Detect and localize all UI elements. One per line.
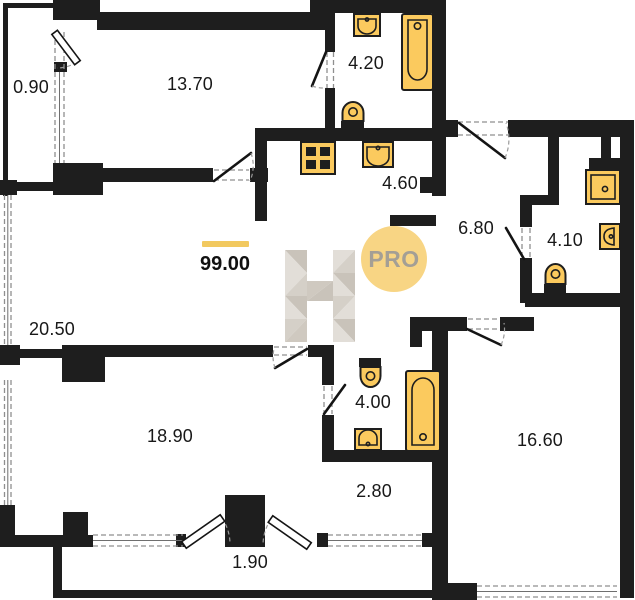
wall xyxy=(63,512,88,535)
room-area-label: 0.90 xyxy=(13,78,49,96)
windows xyxy=(5,32,618,597)
wall xyxy=(520,195,532,227)
door-leaf xyxy=(214,153,251,181)
wall xyxy=(54,62,67,72)
wall xyxy=(53,547,62,592)
room-area-label: 18.90 xyxy=(147,427,193,445)
wall xyxy=(3,3,8,196)
wall xyxy=(105,345,273,357)
room-area-label: 20.50 xyxy=(29,320,75,338)
window-sash xyxy=(268,516,311,550)
door-swing-arc xyxy=(312,86,326,88)
wall xyxy=(325,88,335,132)
wall xyxy=(3,3,55,8)
window-sash xyxy=(52,30,80,65)
wall xyxy=(620,120,634,598)
wall xyxy=(410,317,422,347)
wall xyxy=(508,120,634,137)
wall xyxy=(53,590,445,598)
shower-icon xyxy=(586,170,620,204)
window-sash xyxy=(182,515,225,549)
bathtub-icon xyxy=(402,14,433,90)
wall xyxy=(322,415,334,462)
wall xyxy=(0,345,20,365)
room-area-label: 2.80 xyxy=(356,482,392,500)
wall xyxy=(317,533,328,547)
stove-icon xyxy=(301,142,335,174)
door-swing-arc xyxy=(273,349,275,368)
wall xyxy=(322,345,334,385)
wall xyxy=(103,168,213,182)
wall xyxy=(422,533,441,547)
sink-icon xyxy=(354,14,380,36)
wall xyxy=(420,177,434,193)
wall xyxy=(520,258,532,303)
floorplan-image: 0.90 13.70 4.20 4.60 6.80 4.10 20.50 18.… xyxy=(0,0,635,600)
wall xyxy=(62,345,105,382)
sink-icon xyxy=(355,429,381,450)
room-area-label: 4.00 xyxy=(355,393,391,411)
bathtub-icon xyxy=(406,371,440,451)
door-leaf xyxy=(324,385,345,414)
kitchen-sink-icon xyxy=(363,142,393,167)
door-leaf xyxy=(459,123,505,158)
wall xyxy=(53,0,100,20)
wall xyxy=(525,293,625,307)
floorplan-drawing xyxy=(0,0,635,600)
total-area-accent-bar xyxy=(202,241,249,247)
door-leaf xyxy=(467,329,501,345)
wall xyxy=(601,137,611,158)
wall xyxy=(17,182,63,191)
wall xyxy=(310,0,445,13)
wall xyxy=(432,583,477,600)
h-watermark xyxy=(285,250,355,342)
wall xyxy=(390,215,436,226)
door-leaf xyxy=(275,349,307,368)
wall xyxy=(589,158,620,170)
wall xyxy=(0,180,17,195)
wall xyxy=(432,0,446,196)
room-area-label: 6.80 xyxy=(458,219,494,237)
toilet-icon xyxy=(359,358,381,387)
pro-badge: PRO xyxy=(361,226,427,292)
toilet-icon xyxy=(544,264,566,293)
door-leaf xyxy=(312,52,326,86)
room-area-label: 13.70 xyxy=(167,75,213,93)
wall xyxy=(325,13,335,52)
wall xyxy=(548,137,559,197)
door-leaf xyxy=(506,228,524,259)
toilet-icon xyxy=(341,102,364,130)
wall xyxy=(225,495,265,547)
room-area-label: 4.10 xyxy=(547,231,583,249)
room-area-label: 1.90 xyxy=(232,553,268,571)
wall xyxy=(97,12,335,30)
total-area-label: 99.00 xyxy=(200,253,250,276)
wall xyxy=(445,120,458,137)
room-area-label: 4.20 xyxy=(348,54,384,72)
room-area-label: 4.60 xyxy=(382,174,418,192)
sink-icon xyxy=(600,224,620,249)
wall xyxy=(20,349,62,358)
room-area-label: 16.60 xyxy=(517,431,563,449)
wall xyxy=(0,535,93,547)
